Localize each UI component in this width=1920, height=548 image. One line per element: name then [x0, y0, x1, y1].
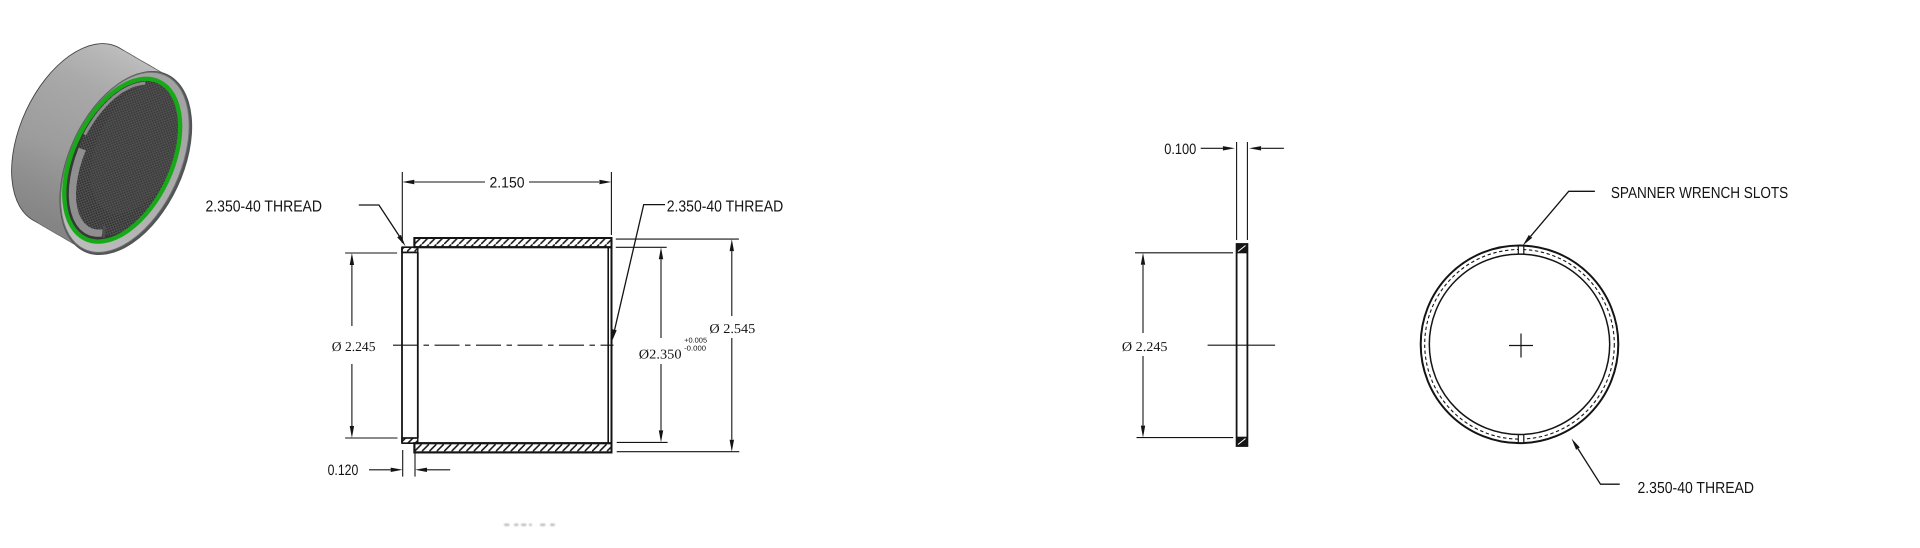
svg-text:2.350-40 THREAD: 2.350-40 THREAD [206, 199, 323, 216]
svg-text:Ø2.350: Ø2.350 [639, 347, 682, 362]
svg-text:Ø 2.245: Ø 2.245 [1122, 339, 1168, 354]
svg-text:Ø 2.545: Ø 2.545 [709, 321, 755, 336]
svg-text:-0.000: -0.000 [684, 346, 706, 353]
svg-text:+0.005: +0.005 [684, 338, 707, 345]
svg-text:0.100: 0.100 [1164, 141, 1196, 158]
svg-text:Ø 2.245: Ø 2.245 [332, 339, 376, 354]
svg-text:0.120: 0.120 [328, 462, 359, 479]
svg-text:2.150: 2.150 [490, 174, 525, 191]
svg-text:2.350-40 THREAD: 2.350-40 THREAD [667, 199, 784, 216]
svg-text:SPANNER WRENCH SLOTS: SPANNER WRENCH SLOTS [1611, 185, 1788, 202]
svg-text:2.350-40 THREAD: 2.350-40 THREAD [1638, 480, 1755, 497]
